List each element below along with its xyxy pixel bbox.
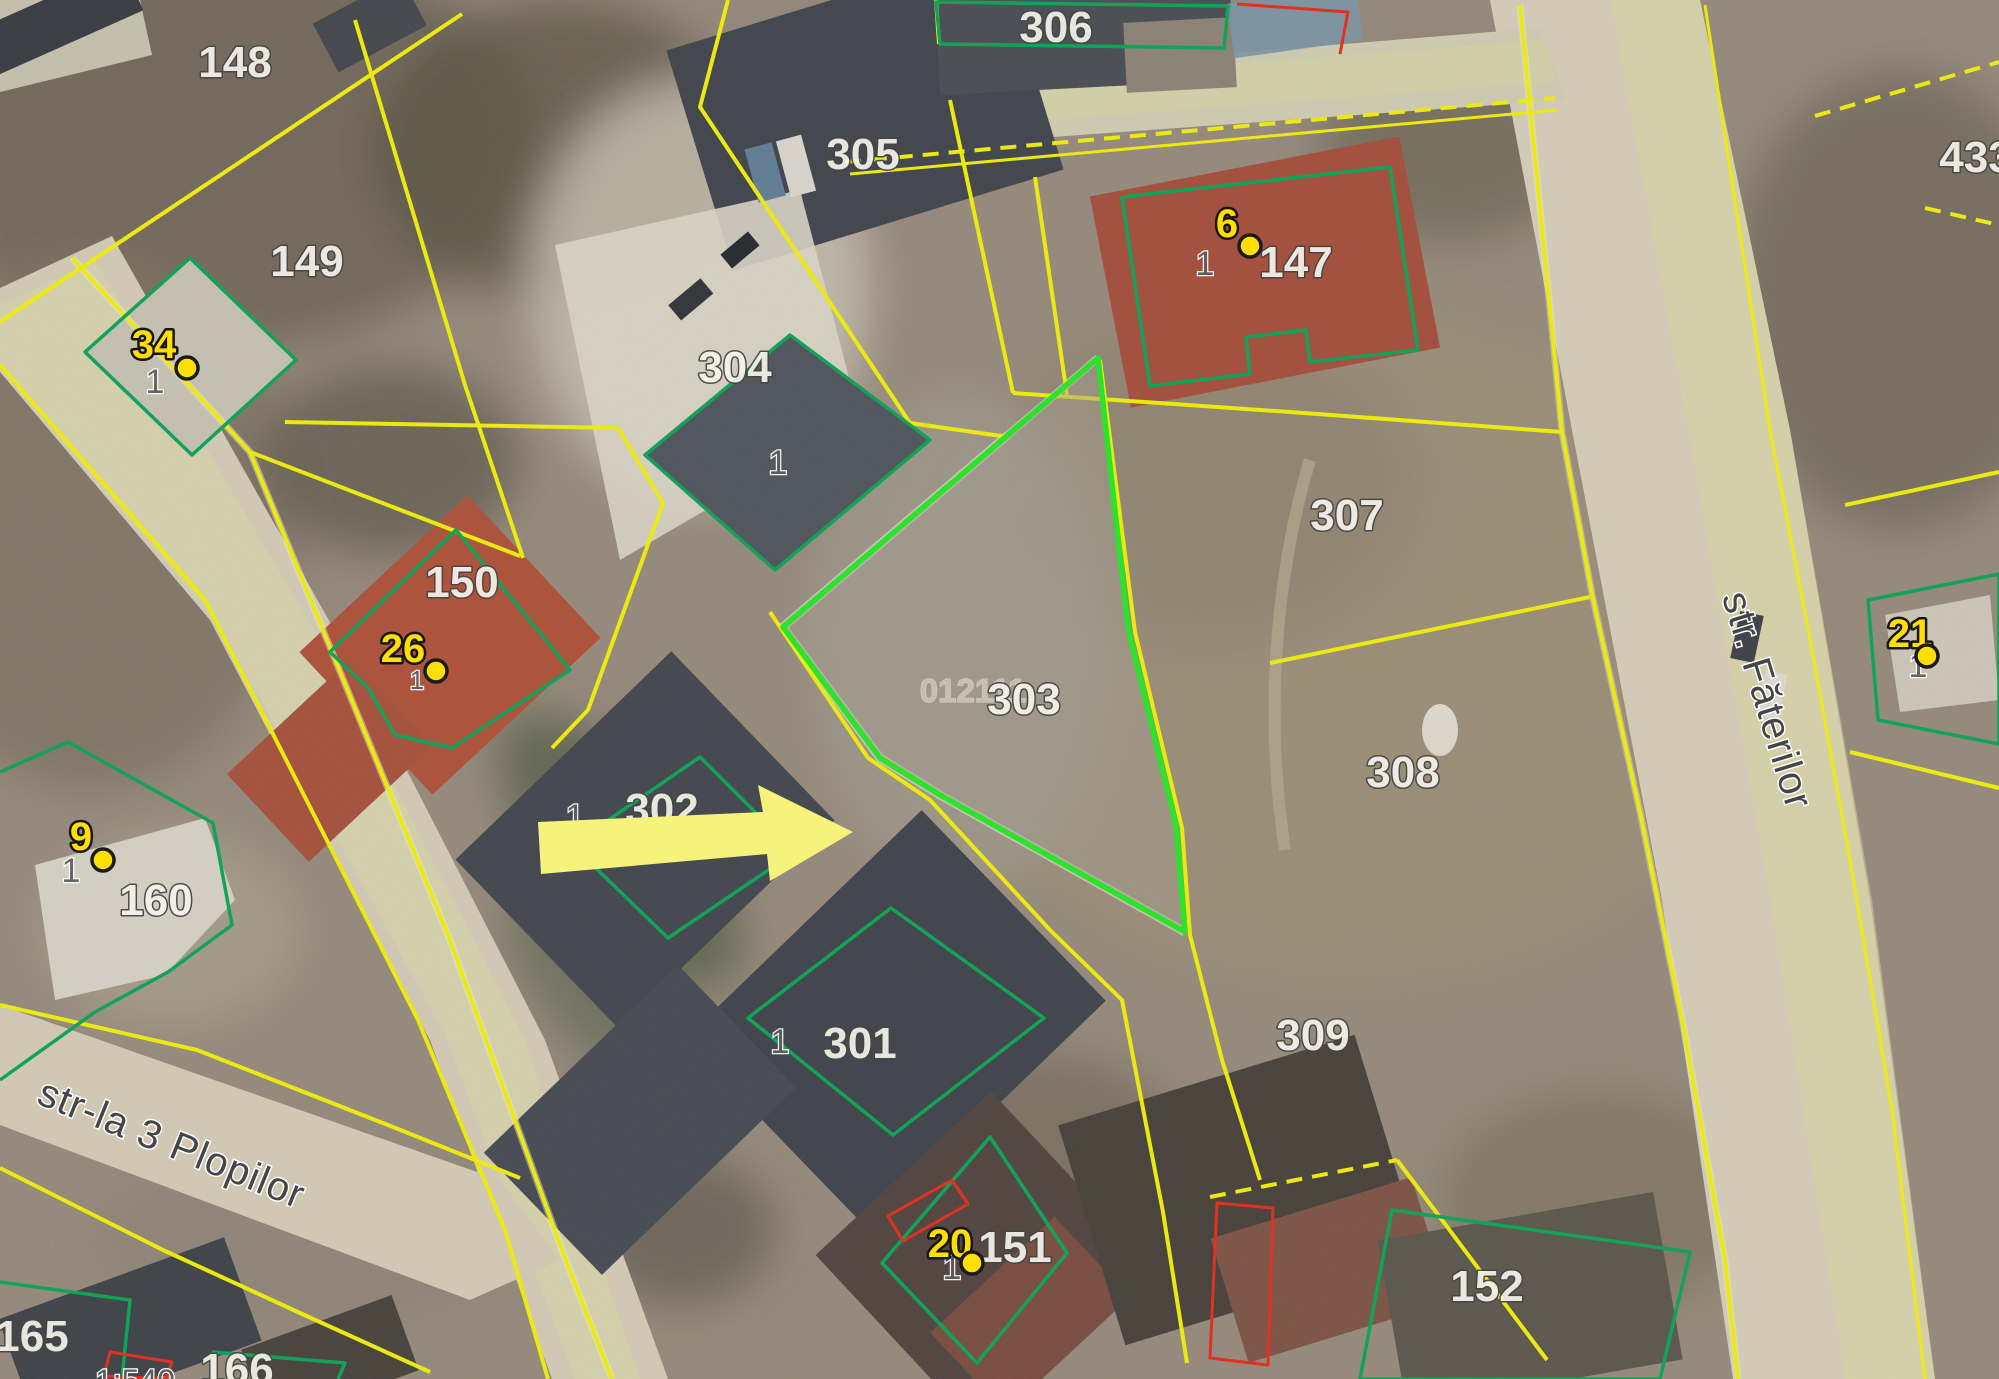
badge-number: 34: [132, 323, 177, 367]
address-point-dot: [92, 849, 114, 871]
parcel-label-152: 152: [1450, 1262, 1523, 1311]
parcel-label-306: 306: [1019, 3, 1092, 52]
address-point-dot: [961, 1252, 983, 1274]
badge-number: 9: [70, 815, 92, 859]
building-label-1: 1: [771, 1023, 790, 1061]
parcel-label-305: 305: [826, 130, 899, 179]
parcel-label-309: 309: [1276, 1011, 1349, 1060]
building-label-1: 1: [1196, 245, 1215, 283]
badge-number: 6: [1216, 202, 1238, 246]
parcel-label-165: 165: [0, 1312, 69, 1361]
address-point-dot: [425, 660, 447, 682]
parcel-label-308: 308: [1366, 748, 1439, 797]
parcel-label-149: 149: [270, 237, 343, 286]
parcel-label-148: 148: [198, 38, 271, 87]
badge-number: 26: [381, 627, 426, 671]
parcel-label-301: 301: [823, 1019, 896, 1068]
parcel-label-147: 147: [1259, 238, 1332, 287]
cadastral-map-viewport[interactable]: 012111 148 149 305 304 306 147 303 307 3…: [0, 0, 1999, 1379]
parcel-label-166: 166: [200, 1345, 273, 1379]
scale-label: 1:540: [95, 1363, 175, 1379]
address-point-dot: [176, 357, 198, 379]
building-label-1: 1: [769, 444, 788, 482]
address-point-dot: [1239, 235, 1261, 257]
parcel-label-160: 160: [119, 876, 192, 925]
parcel-label-303: 303: [987, 675, 1060, 724]
address-point-dot: [1916, 645, 1938, 667]
parcel-label-433: 433: [1939, 133, 1999, 182]
parcel-label-307: 307: [1310, 491, 1383, 540]
building-label-1: 1: [146, 363, 165, 401]
parcel-label-304: 304: [698, 343, 772, 392]
cadastral-map[interactable]: 012111 148 149 305 304 306 147 303 307 3…: [0, 0, 1999, 1379]
parcel-label-150: 150: [425, 558, 498, 607]
parcel-label-151: 151: [978, 1223, 1051, 1272]
